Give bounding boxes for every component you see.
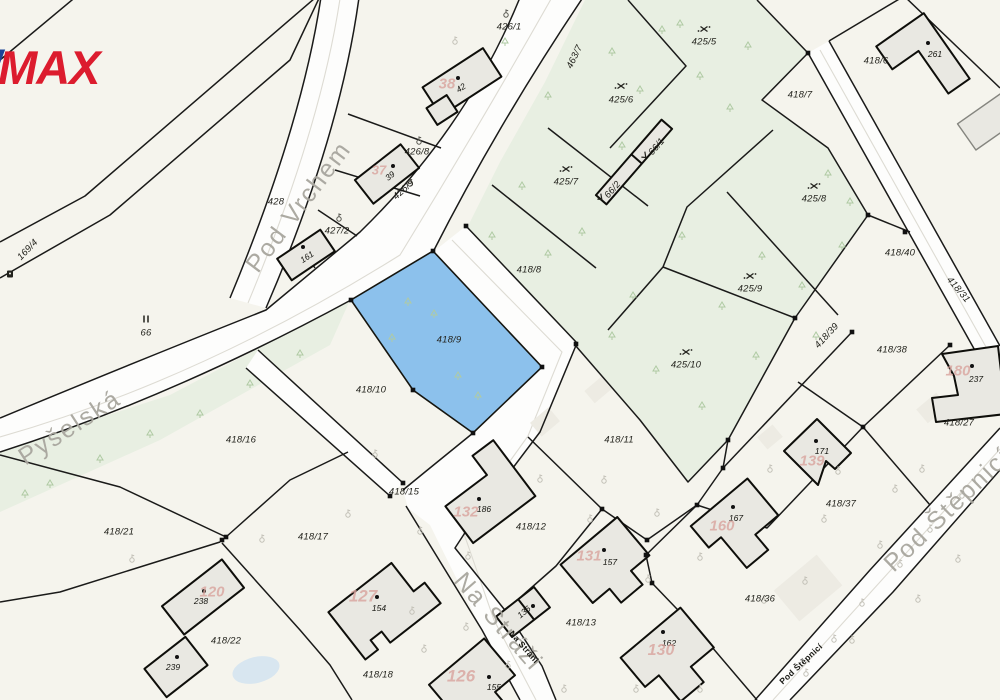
vertex-marker bbox=[411, 388, 416, 393]
vertex-marker bbox=[721, 466, 726, 471]
vertex-marker bbox=[650, 581, 655, 586]
vertex-marker bbox=[866, 213, 871, 218]
vertex-marker bbox=[349, 298, 354, 303]
building-dot bbox=[375, 595, 379, 599]
building-dot bbox=[731, 505, 735, 509]
vertex-marker bbox=[645, 538, 650, 543]
vertex-marker bbox=[850, 330, 855, 335]
building-dot bbox=[456, 76, 460, 80]
vertex-marker bbox=[540, 365, 545, 370]
vertex-marker bbox=[793, 316, 798, 321]
building-dot bbox=[202, 589, 206, 593]
well-icon bbox=[7, 271, 13, 278]
building-dot bbox=[487, 675, 491, 679]
vertex-marker bbox=[861, 425, 866, 430]
remax-logo: /MAX bbox=[0, 40, 100, 95]
vertex-marker bbox=[948, 343, 953, 348]
vertex-marker bbox=[431, 249, 436, 254]
vertex-marker bbox=[695, 503, 700, 508]
building-dot bbox=[602, 548, 606, 552]
vertex-marker bbox=[401, 481, 406, 486]
vertex-marker bbox=[471, 431, 476, 436]
building-dot bbox=[814, 439, 818, 443]
vertex-marker bbox=[220, 538, 225, 543]
building-dot bbox=[531, 604, 535, 608]
building-dot bbox=[477, 497, 481, 501]
building-dot bbox=[175, 655, 179, 659]
cadastral-map[interactable]: Pod VrchemPyšelskáNa StrážiPod ŠtěpnicíN… bbox=[0, 0, 1000, 700]
building-dot bbox=[970, 364, 974, 368]
vertex-marker bbox=[903, 230, 908, 235]
vertex-marker bbox=[224, 535, 229, 540]
remax-logo-text: MAX bbox=[0, 41, 100, 94]
building-dot bbox=[301, 245, 305, 249]
vertex-marker bbox=[464, 224, 469, 229]
vertex-marker bbox=[806, 51, 811, 56]
vertex-marker bbox=[600, 507, 605, 512]
map-canvas[interactable] bbox=[0, 0, 1000, 700]
vertex-marker bbox=[644, 553, 649, 558]
vertex-marker bbox=[388, 494, 393, 499]
vertex-marker bbox=[726, 438, 731, 443]
building-dot bbox=[926, 41, 930, 45]
vertex-marker bbox=[574, 342, 579, 347]
building-dot bbox=[661, 630, 665, 634]
building-dot bbox=[391, 164, 395, 168]
